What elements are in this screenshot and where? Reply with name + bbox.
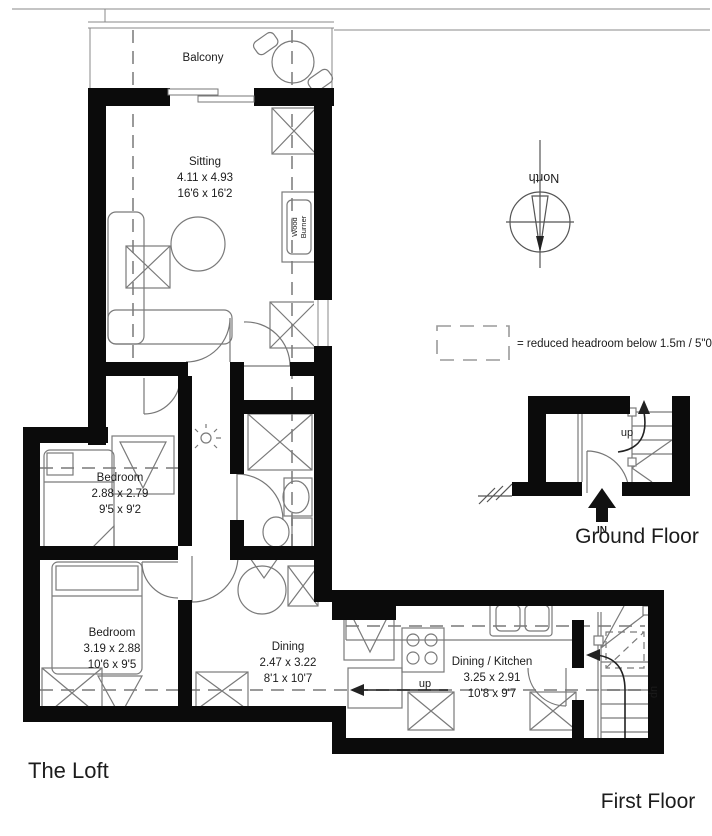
roof-edge-lines [12, 9, 710, 88]
room-dim-metric: 2.88 x 2.79 [92, 486, 149, 502]
up-label-first-floor-stairs: up [646, 686, 662, 698]
room-name: Bedroom [92, 470, 149, 486]
room-dim-imperial: 10'8 x 9'7 [452, 686, 533, 702]
room-label-dining: Dining 2.47 x 3.22 8'1 x 10'7 [260, 639, 317, 687]
room-dim-imperial: 8'1 x 10'7 [260, 671, 317, 687]
room-label-dining-kitchen: Dining / Kitchen 3.25 x 2.91 10'8 x 9'7 [452, 654, 533, 702]
floorplan-linework [0, 0, 712, 836]
ground-floor-title: Ground Floor [575, 525, 699, 549]
room-label-balcony: Balcony [183, 50, 224, 66]
room-label-sitting: Sitting 4.11 x 4.93 16'6 x 16'2 [177, 154, 233, 202]
compass-north-label: North [529, 170, 560, 186]
wood-burner-label: Wood Burner [290, 216, 308, 239]
room-label-bedroom2: Bedroom 3.19 x 2.88 10'6 x 9'5 [84, 625, 141, 673]
room-dim-metric: 2.47 x 3.22 [260, 655, 317, 671]
room-name: Dining [260, 639, 317, 655]
legend-text: = reduced headroom below 1.5m / 5"0 [517, 338, 712, 350]
first-floor-title: First Floor [601, 790, 696, 814]
room-label-bedroom1: Bedroom 2.88 x 2.79 9'5 x 9'2 [92, 470, 149, 518]
room-dim-metric: 3.19 x 2.88 [84, 641, 141, 657]
up-label-kitchen: up [419, 676, 431, 692]
room-dim-imperial: 16'6 x 16'2 [177, 186, 233, 202]
room-name: Sitting [177, 154, 233, 170]
room-dim-metric: 3.25 x 2.91 [452, 670, 533, 686]
plan-title: The Loft [28, 758, 109, 784]
room-name: Dining / Kitchen [452, 654, 533, 670]
room-dim-imperial: 9'5 x 9'2 [92, 502, 149, 518]
kitchen-up-arrow [350, 684, 448, 696]
room-dim-metric: 4.11 x 4.93 [177, 170, 233, 186]
up-label-ground-floor: up [621, 425, 633, 441]
compass [506, 140, 574, 268]
room-name: Balcony [183, 50, 224, 66]
floorplan-canvas: Balcony Sitting 4.11 x 4.93 16'6 x 16'2 … [0, 0, 712, 836]
room-dim-imperial: 10'6 x 9'5 [84, 657, 141, 673]
entrance-arrow [588, 488, 616, 522]
legend-swatch [437, 326, 509, 360]
first-floor-stairs [586, 606, 652, 752]
door-swings [142, 318, 629, 706]
room-name: Bedroom [84, 625, 141, 641]
